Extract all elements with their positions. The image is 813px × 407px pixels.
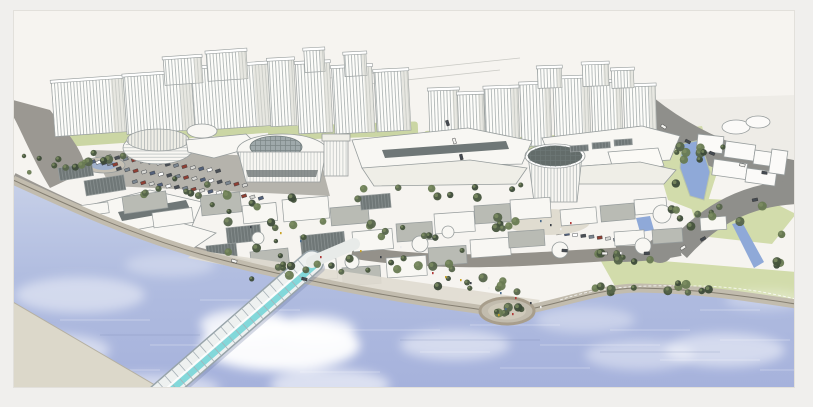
tree-highlight: [593, 285, 596, 288]
tree-highlight: [314, 261, 317, 264]
tower-roof: [581, 61, 609, 65]
car: [762, 171, 768, 175]
person: [320, 256, 322, 258]
person: [540, 306, 542, 308]
tree-highlight: [506, 223, 509, 226]
person: [500, 292, 502, 294]
block-windows: [570, 145, 588, 152]
person: [530, 302, 532, 304]
tree-highlight: [394, 266, 398, 270]
tree-highlight: [281, 262, 284, 265]
tree-highlight: [512, 218, 516, 222]
tree-highlight: [699, 289, 702, 292]
tree-highlight: [474, 194, 478, 198]
tree-highlight: [361, 186, 364, 189]
architectural-rendering-image: [0, 0, 813, 407]
tree-highlight: [301, 235, 304, 238]
tree-highlight: [433, 235, 436, 238]
tree-highlight: [473, 185, 476, 188]
person: [560, 228, 562, 230]
parked-car: [589, 235, 594, 239]
window-band: [246, 170, 318, 177]
tree-highlight: [498, 282, 502, 286]
tree-highlight: [686, 290, 689, 293]
tree-highlight: [774, 258, 778, 262]
tree-highlight: [676, 281, 679, 284]
tree-highlight: [460, 249, 462, 251]
tree-highlight: [37, 156, 39, 158]
tree-highlight: [434, 193, 438, 197]
tree-highlight: [320, 219, 323, 222]
tree-highlight: [519, 183, 521, 185]
tree-highlight: [721, 145, 723, 147]
tree-highlight: [143, 190, 146, 193]
tree-highlight: [673, 207, 676, 210]
village-block: [600, 203, 635, 222]
tree-highlight: [429, 186, 432, 189]
tree-highlight: [701, 150, 704, 153]
person: [505, 308, 507, 310]
village-block: [652, 228, 683, 244]
tree-highlight: [278, 254, 280, 256]
tree-highlight: [254, 204, 257, 207]
tree-highlight: [303, 267, 306, 270]
tree-highlight: [101, 158, 104, 161]
tree-highlight: [673, 180, 677, 184]
tree-highlight: [28, 171, 30, 173]
tree-highlight: [289, 194, 293, 198]
person: [515, 297, 517, 299]
tree-highlight: [366, 268, 368, 270]
tree-highlight: [717, 204, 720, 207]
tree-highlight: [598, 250, 602, 254]
person: [488, 287, 490, 289]
tree-highlight: [56, 157, 59, 160]
tree-highlight: [500, 226, 503, 229]
person: [432, 272, 434, 274]
round-pavilion: [252, 232, 264, 244]
tree-highlight: [683, 281, 687, 285]
tree-highlight: [681, 157, 685, 161]
person: [460, 279, 462, 281]
round-pavilion: [635, 238, 651, 254]
village-block: [560, 207, 597, 226]
tree-highlight: [608, 286, 612, 290]
tower-shade: [603, 64, 609, 86]
tree-highlight: [225, 249, 228, 252]
tree-highlight: [669, 206, 673, 210]
village-block: [434, 211, 475, 234]
tree-highlight: [759, 203, 763, 207]
tree-highlight: [615, 257, 619, 261]
tree-highlight: [79, 162, 82, 165]
person: [620, 252, 622, 254]
person: [400, 246, 402, 248]
cloud-reflection: [535, 307, 635, 333]
cloud-reflection: [15, 277, 145, 313]
tree-highlight: [83, 160, 85, 162]
tree-highlight: [415, 262, 419, 266]
person: [250, 226, 252, 228]
tree-highlight: [709, 210, 711, 212]
tree-highlight: [666, 287, 669, 290]
tree-highlight: [249, 201, 252, 204]
tree-highlight: [495, 310, 497, 312]
tower-roof: [610, 67, 634, 71]
tree-highlight: [493, 224, 497, 228]
tree-highlight: [697, 145, 701, 149]
tree-highlight: [429, 263, 433, 267]
tree-highlight: [355, 196, 358, 199]
tree-highlight: [91, 151, 94, 154]
tree-highlight: [290, 222, 294, 226]
tree-highlight: [779, 232, 782, 235]
tree-highlight: [505, 304, 509, 308]
tree-highlight: [276, 265, 279, 268]
car: [644, 252, 650, 255]
atrium-cap: [322, 134, 350, 141]
tree-highlight: [288, 263, 292, 267]
person: [445, 276, 447, 278]
tree-highlight: [632, 259, 635, 262]
tree-highlight: [210, 203, 212, 205]
parked-car: [581, 234, 586, 238]
tree-highlight: [435, 283, 439, 287]
tree-highlight: [510, 187, 513, 190]
tree-highlight: [736, 218, 740, 222]
person: [280, 232, 282, 234]
person: [570, 222, 572, 224]
person: [540, 220, 542, 222]
tree-highlight: [286, 272, 290, 276]
tree-highlight: [446, 276, 448, 278]
tree-highlight: [675, 150, 677, 152]
round-pavilion: [442, 226, 454, 238]
tree-highlight: [480, 274, 484, 278]
masterplan-perspective-scene: [0, 0, 813, 407]
tree-highlight: [121, 154, 124, 157]
tree-highlight: [368, 220, 372, 224]
tree-highlight: [515, 304, 519, 308]
tree-highlight: [205, 182, 208, 185]
cloud-reflection: [400, 330, 510, 360]
person: [360, 250, 362, 252]
tree-highlight: [227, 209, 229, 211]
person: [380, 256, 382, 258]
car: [602, 252, 608, 255]
tree-highlight: [465, 280, 468, 283]
tree-highlight: [224, 192, 228, 196]
sketch-building: [769, 149, 788, 175]
tree-highlight: [468, 286, 470, 288]
tree-highlight: [695, 212, 698, 215]
tree-highlight: [383, 229, 386, 232]
tree-highlight: [446, 261, 450, 265]
tree-highlight: [396, 185, 399, 188]
sketch-round-building: [746, 116, 770, 128]
village-block: [508, 229, 545, 247]
tree-highlight: [225, 218, 229, 222]
tower-shade: [629, 70, 634, 88]
tree-highlight: [401, 226, 403, 228]
cloud-reflection: [665, 333, 785, 367]
tree-highlight: [22, 154, 24, 156]
tree-highlight: [709, 213, 713, 217]
tree-highlight: [632, 285, 635, 288]
tree-highlight: [268, 219, 272, 223]
tree-highlight: [494, 214, 498, 218]
tree-highlight: [598, 283, 602, 287]
tree-highlight: [422, 233, 425, 236]
tree-highlight: [156, 186, 159, 189]
tree-highlight: [379, 234, 382, 237]
person: [498, 314, 500, 316]
car: [562, 249, 568, 252]
tree-highlight: [347, 256, 351, 260]
tree-highlight: [329, 263, 332, 266]
village-block: [474, 203, 511, 223]
tree-highlight: [514, 289, 517, 292]
tree-highlight: [389, 260, 392, 263]
tree-highlight: [647, 257, 650, 260]
tree-highlight: [250, 277, 252, 279]
person: [470, 282, 472, 284]
tree-highlight: [274, 239, 276, 241]
tower-shade: [556, 68, 561, 88]
tree-highlight: [614, 251, 617, 254]
parked-car: [572, 233, 577, 237]
tree-highlight: [500, 278, 503, 281]
tree-highlight: [184, 189, 187, 192]
person: [512, 313, 514, 315]
tree-highlight: [677, 143, 681, 147]
parked-car: [597, 236, 602, 240]
tree-highlight: [253, 245, 257, 249]
tree-highlight: [63, 165, 66, 168]
tree-highlight: [706, 286, 710, 290]
tree-highlight: [73, 164, 76, 167]
tree-highlight: [688, 223, 692, 227]
tree-highlight: [339, 270, 342, 273]
block-windows: [614, 139, 632, 146]
tree-highlight: [401, 256, 404, 259]
tree-highlight: [448, 193, 451, 196]
village-block: [470, 237, 511, 258]
person: [550, 224, 552, 226]
person: [300, 240, 302, 242]
block-windows: [360, 193, 391, 210]
tree-highlight: [52, 163, 55, 166]
tower-roof: [536, 65, 562, 69]
block-windows: [592, 142, 610, 149]
tree-highlight: [196, 193, 199, 196]
tree-highlight: [173, 177, 175, 179]
tower-roof: [456, 91, 484, 95]
parked-car: [605, 237, 610, 241]
village-block: [200, 192, 242, 216]
tree-highlight: [678, 216, 681, 219]
round-annex-roof: [187, 124, 217, 138]
village-block: [510, 197, 551, 220]
